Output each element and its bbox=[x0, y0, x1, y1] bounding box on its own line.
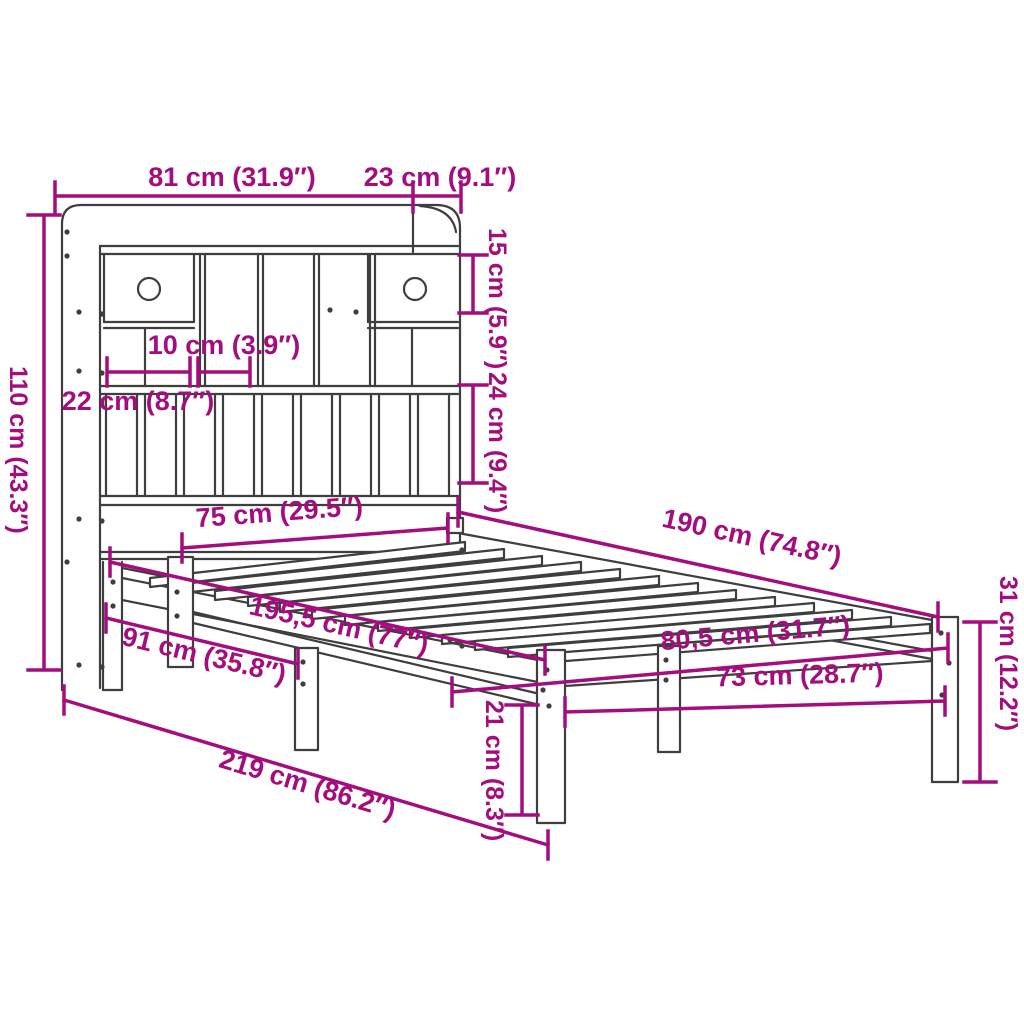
dim-label-headboard-depth: 23 cm (9.1″) bbox=[364, 162, 517, 192]
drawer-knob-left bbox=[138, 278, 160, 300]
foot-leg-near bbox=[537, 650, 565, 823]
dim-line-foot-end-height bbox=[964, 622, 996, 782]
bookcase-bed-diagram: 81 cm (31.9″) 23 cm (9.1″) 15 cm (5.9″) … bbox=[0, 0, 1024, 1024]
dimension-diagram-canvas: 81 cm (31.9″) 23 cm (9.1″) 15 cm (5.9″) … bbox=[0, 0, 1024, 1024]
drawer-row-shelves bbox=[104, 322, 458, 328]
dim-label-under-bed-clearance: 21 cm (8.3″) bbox=[480, 700, 508, 841]
dim-line-drawer-width bbox=[107, 358, 190, 386]
dim-label-headboard-width: 81 cm (31.9″) bbox=[148, 162, 316, 192]
dim-label-inner-width-head: 75 cm (29.5″) bbox=[195, 491, 364, 533]
dim-label-total-length: 219 cm (86.2″) bbox=[216, 744, 399, 825]
dim-label-top-shelf-height: 15 cm (5.9″) bbox=[483, 228, 511, 369]
dim-label-cubby-width: 10 cm (3.9″) bbox=[148, 330, 301, 360]
dim-label-lower-shelf-height: 24 cm (9.4″) bbox=[483, 372, 511, 513]
cubby-dividers bbox=[200, 254, 375, 386]
drawer-knob-right bbox=[404, 278, 426, 300]
dimension-annotations bbox=[28, 182, 996, 859]
dim-line-inner-width-foot bbox=[565, 687, 945, 726]
dim-label-inner-width-foot: 73 cm (28.7″) bbox=[716, 658, 884, 693]
dimension-labels: 81 cm (31.9″) 23 cm (9.1″) 15 cm (5.9″) … bbox=[4, 162, 1022, 841]
dim-label-foot-end-height: 31 cm (12.2″) bbox=[994, 576, 1022, 731]
dim-label-head-to-middle-leg: 91 cm (35.8″) bbox=[119, 621, 289, 689]
middle-leg-far bbox=[658, 646, 680, 752]
dim-line-top-shelf-height bbox=[459, 255, 487, 313]
headboard-top-shelf bbox=[100, 246, 458, 254]
dim-line-under-bed-clearance bbox=[506, 705, 538, 815]
dim-label-drawer-width: 22 cm (8.7″) bbox=[62, 386, 215, 416]
dim-label-headboard-height: 110 cm (43.3″) bbox=[4, 366, 32, 534]
dim-line-lower-shelf-height bbox=[459, 385, 487, 483]
